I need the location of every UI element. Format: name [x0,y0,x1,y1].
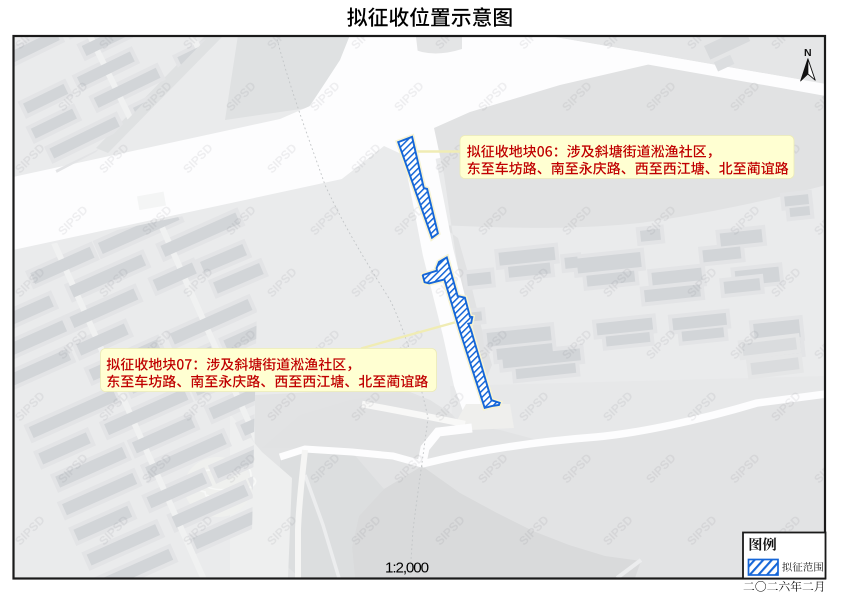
svg-text:N: N [804,47,812,59]
svg-text:1:2,000: 1:2,000 [385,560,429,577]
